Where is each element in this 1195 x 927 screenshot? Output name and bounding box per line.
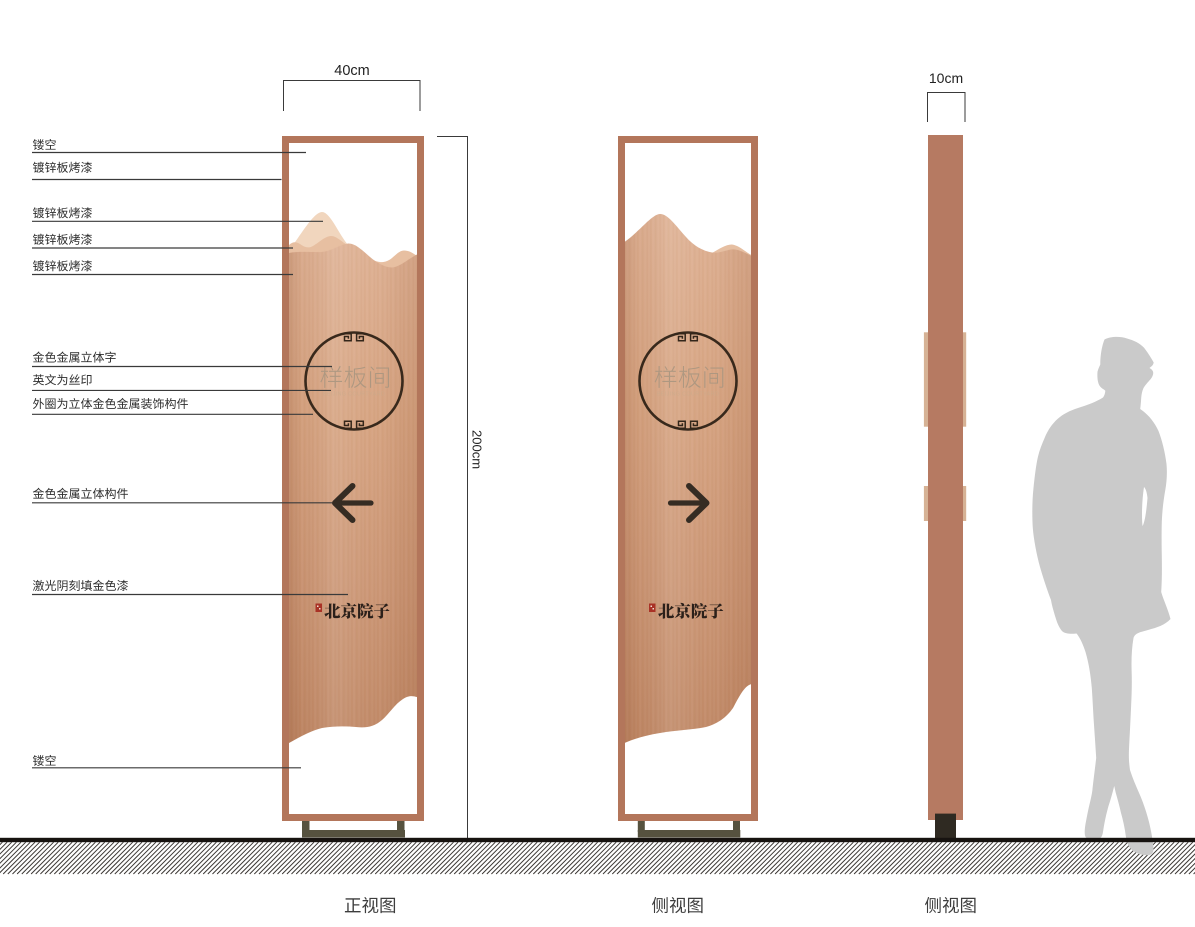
svg-text:40cm: 40cm: [334, 63, 369, 79]
svg-text:BEIJING COURTYARD: BEIJING COURTYARD: [323, 392, 385, 398]
svg-text:BEIJING COURTYARD: BEIJING COURTYARD: [657, 392, 719, 398]
svg-text:10cm: 10cm: [929, 70, 963, 86]
svg-text:200cm: 200cm: [470, 430, 485, 469]
